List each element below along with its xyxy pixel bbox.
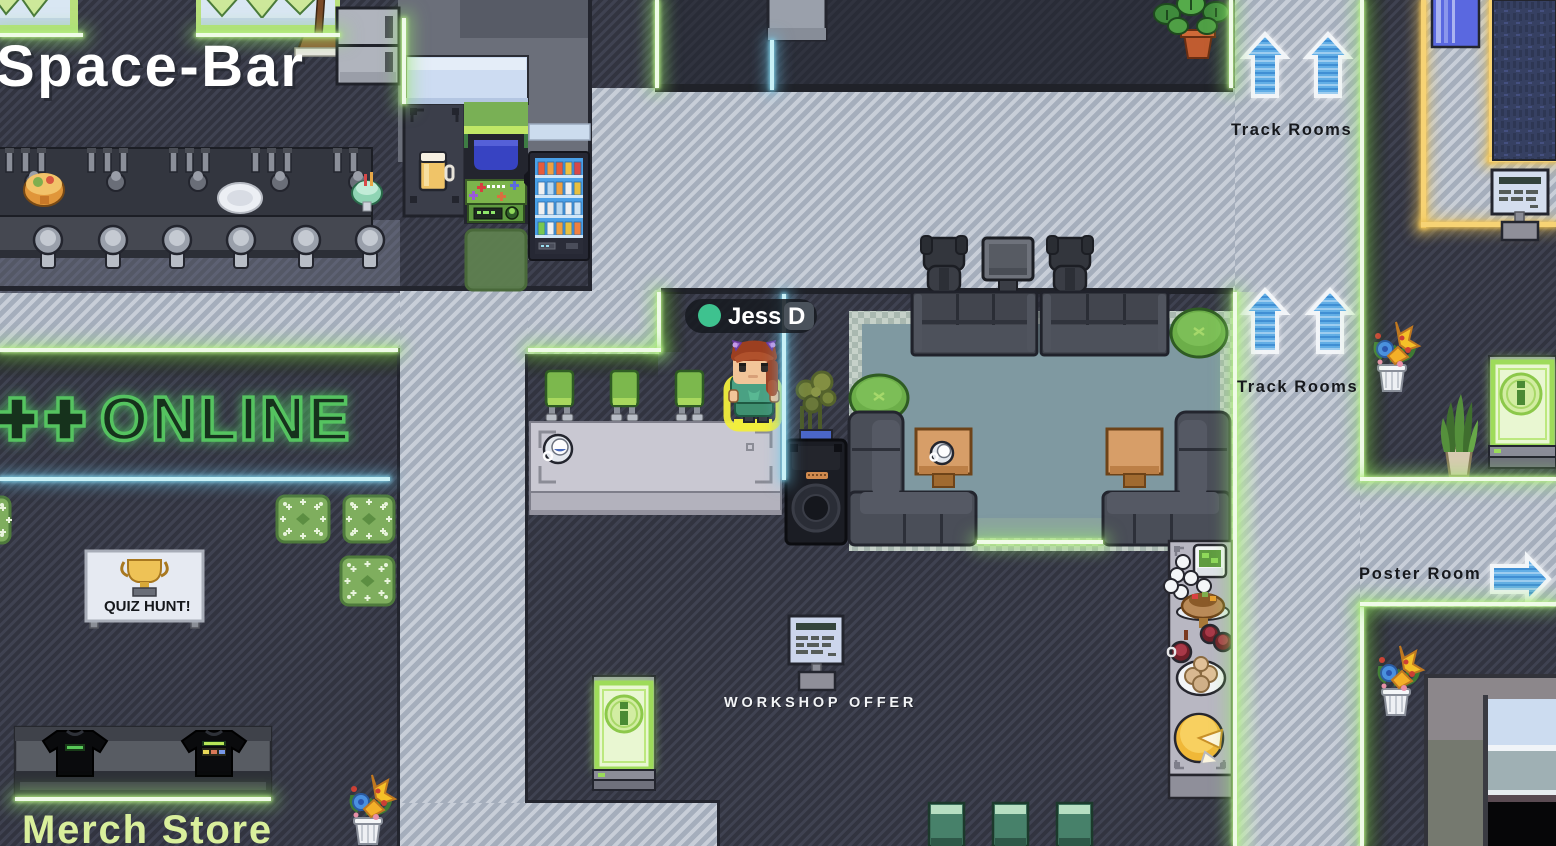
- svg-text:ONLINE: ONLINE: [100, 385, 352, 454]
